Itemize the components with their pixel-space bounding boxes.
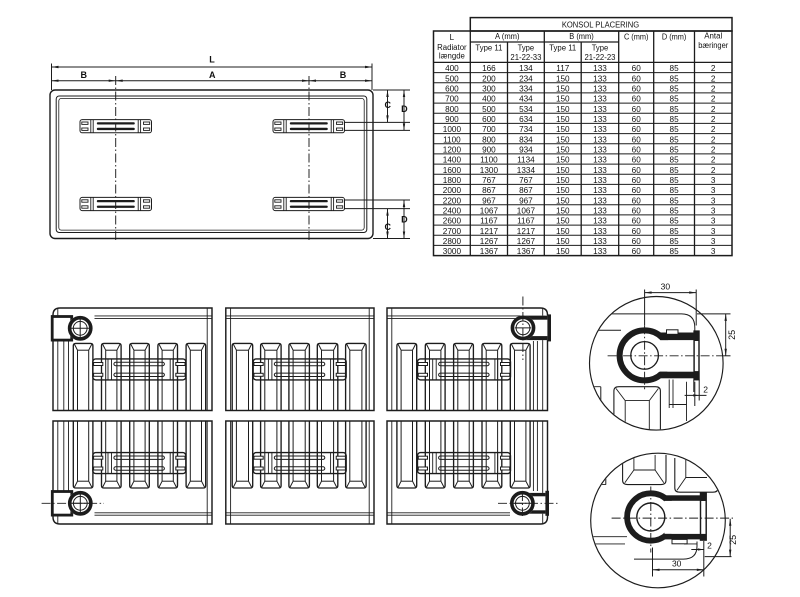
svg-text:150: 150 [556,84,570,93]
svg-text:1800: 1800 [443,176,462,185]
svg-text:Type 11: Type 11 [549,44,577,53]
svg-text:133: 133 [593,227,607,236]
svg-text:85: 85 [670,176,680,185]
svg-text:85: 85 [670,135,680,144]
svg-text:2600: 2600 [443,217,462,226]
svg-text:D: D [401,104,408,114]
svg-text:600: 600 [482,115,496,124]
svg-text:A (mm): A (mm) [495,32,520,41]
svg-text:1400: 1400 [443,156,462,165]
svg-text:60: 60 [632,125,642,134]
svg-text:1134: 1134 [517,156,535,165]
svg-text:2: 2 [711,64,716,73]
svg-text:150: 150 [556,156,570,165]
svg-text:60: 60 [632,227,642,236]
svg-text:500: 500 [445,74,459,83]
svg-text:1200: 1200 [443,145,462,154]
svg-text:85: 85 [670,74,680,83]
svg-text:2: 2 [711,156,716,165]
svg-text:133: 133 [593,186,607,195]
svg-text:700: 700 [445,95,459,104]
svg-text:85: 85 [670,166,680,175]
svg-text:400: 400 [445,64,459,73]
svg-text:2: 2 [711,135,716,144]
svg-text:150: 150 [556,196,570,205]
svg-text:133: 133 [593,84,607,93]
svg-text:3: 3 [711,227,716,236]
svg-text:2700: 2700 [443,227,462,236]
svg-text:2: 2 [711,166,716,175]
svg-text:1334: 1334 [517,166,536,175]
svg-text:KONSOL PLACERING: KONSOL PLACERING [562,20,639,29]
svg-text:150: 150 [556,95,570,104]
svg-text:133: 133 [593,95,607,104]
svg-text:133: 133 [593,105,607,114]
svg-text:150: 150 [556,145,570,154]
svg-text:Antal: Antal [704,31,722,40]
svg-text:634: 634 [519,115,533,124]
svg-text:800: 800 [445,105,459,114]
svg-text:134: 134 [519,64,533,73]
svg-text:C (mm): C (mm) [624,33,649,42]
svg-text:2: 2 [711,145,716,154]
svg-text:1600: 1600 [443,166,462,175]
svg-text:2: 2 [703,384,708,394]
svg-text:25: 25 [728,535,738,545]
svg-text:60: 60 [632,156,642,165]
svg-text:867: 867 [519,186,533,195]
svg-text:133: 133 [593,217,607,226]
svg-text:400: 400 [482,95,496,104]
svg-text:1067: 1067 [517,207,536,216]
svg-text:967: 967 [482,196,496,205]
svg-text:150: 150 [556,166,570,175]
svg-text:834: 834 [519,135,533,144]
svg-text:30: 30 [672,559,682,569]
svg-text:1267: 1267 [480,237,499,246]
svg-text:900: 900 [445,115,459,124]
svg-text:60: 60 [632,95,642,104]
svg-text:150: 150 [556,74,570,83]
svg-text:L: L [450,33,455,42]
svg-text:2800: 2800 [443,237,462,246]
svg-text:1217: 1217 [480,227,499,236]
svg-text:934: 934 [519,145,533,154]
svg-text:133: 133 [593,74,607,83]
svg-text:150: 150 [556,186,570,195]
svg-text:500: 500 [482,105,496,114]
svg-text:150: 150 [556,176,570,185]
svg-text:2: 2 [711,125,716,134]
svg-text:85: 85 [670,115,680,124]
svg-text:Type: Type [518,44,535,53]
svg-text:3: 3 [711,237,716,246]
svg-text:C: C [384,100,391,110]
svg-text:133: 133 [593,207,607,216]
svg-text:2200: 2200 [443,196,462,205]
svg-text:85: 85 [670,247,680,256]
svg-text:133: 133 [593,125,607,134]
svg-text:2: 2 [711,84,716,93]
svg-text:2: 2 [711,105,716,114]
svg-text:150: 150 [556,217,570,226]
svg-text:1000: 1000 [443,125,462,134]
svg-text:60: 60 [632,237,642,246]
svg-text:60: 60 [632,135,642,144]
svg-text:B: B [81,70,88,80]
svg-text:150: 150 [556,237,570,246]
svg-text:60: 60 [632,186,642,195]
svg-text:Type 11: Type 11 [475,44,503,53]
svg-text:133: 133 [593,156,607,165]
svg-text:2400: 2400 [443,207,462,216]
svg-text:150: 150 [556,115,570,124]
svg-text:767: 767 [482,176,496,185]
svg-text:85: 85 [670,217,680,226]
svg-text:85: 85 [670,95,680,104]
svg-text:2000: 2000 [443,186,462,195]
svg-text:900: 900 [482,145,496,154]
svg-text:133: 133 [593,64,607,73]
svg-text:3: 3 [711,217,716,226]
svg-text:133: 133 [593,166,607,175]
svg-text:133: 133 [593,115,607,124]
svg-text:85: 85 [670,237,680,246]
svg-text:867: 867 [482,186,496,195]
svg-text:1167: 1167 [480,217,498,226]
svg-text:800: 800 [482,135,496,144]
svg-text:1367: 1367 [480,247,499,256]
svg-text:133: 133 [593,237,607,246]
svg-text:60: 60 [632,74,642,83]
svg-text:967: 967 [519,196,533,205]
svg-text:L: L [209,55,215,65]
svg-text:3: 3 [711,207,716,216]
svg-text:166: 166 [482,64,496,73]
svg-text:133: 133 [593,247,607,256]
svg-text:bæringer: bæringer [698,41,728,50]
svg-text:334: 334 [519,84,533,93]
svg-text:30: 30 [661,282,671,292]
svg-text:85: 85 [670,105,680,114]
svg-text:117: 117 [556,64,569,73]
svg-text:3000: 3000 [443,247,462,256]
svg-text:21-22-33: 21-22-33 [510,53,542,62]
svg-text:85: 85 [670,227,680,236]
svg-text:D: D [401,214,408,224]
svg-text:434: 434 [519,95,533,104]
svg-text:1300: 1300 [480,166,499,175]
svg-text:85: 85 [670,145,680,154]
svg-text:60: 60 [632,217,642,226]
svg-text:1167: 1167 [517,217,535,226]
svg-text:60: 60 [632,64,642,73]
svg-text:150: 150 [556,125,570,134]
svg-text:Type: Type [592,44,609,53]
svg-text:B: B [340,70,347,80]
svg-text:767: 767 [519,176,533,185]
svg-text:D (mm): D (mm) [662,33,687,42]
svg-text:85: 85 [670,125,680,134]
svg-text:534: 534 [519,105,533,114]
svg-text:A: A [209,70,216,80]
svg-text:60: 60 [632,196,642,205]
svg-text:25: 25 [727,330,737,340]
svg-text:2: 2 [711,95,716,104]
svg-text:1100: 1100 [443,135,461,144]
svg-text:3: 3 [711,196,716,205]
svg-text:60: 60 [632,166,642,175]
svg-text:60: 60 [632,84,642,93]
svg-text:600: 600 [445,84,459,93]
svg-text:60: 60 [632,115,642,124]
svg-text:2: 2 [707,541,712,551]
svg-text:734: 734 [519,125,533,134]
svg-text:C: C [384,222,391,232]
svg-text:150: 150 [556,135,570,144]
svg-text:1267: 1267 [517,237,536,246]
svg-text:85: 85 [670,186,680,195]
svg-text:1217: 1217 [517,227,536,236]
svg-text:1367: 1367 [517,247,536,256]
svg-text:85: 85 [670,156,680,165]
svg-text:1100: 1100 [480,156,498,165]
svg-text:21-22-23: 21-22-23 [584,53,616,62]
svg-text:60: 60 [632,247,642,256]
svg-text:85: 85 [670,84,680,93]
svg-text:1067: 1067 [480,207,499,216]
svg-text:234: 234 [519,74,533,83]
svg-text:150: 150 [556,247,570,256]
svg-text:3: 3 [711,247,716,256]
svg-text:700: 700 [482,125,496,134]
svg-text:60: 60 [632,145,642,154]
svg-text:133: 133 [593,176,607,185]
svg-text:2: 2 [711,74,716,83]
svg-text:3: 3 [711,186,716,195]
svg-text:150: 150 [556,105,570,114]
svg-text:længde: længde [439,51,466,60]
svg-text:300: 300 [482,84,496,93]
svg-text:150: 150 [556,227,570,236]
svg-text:85: 85 [670,64,680,73]
svg-text:150: 150 [556,207,570,216]
svg-text:133: 133 [593,196,607,205]
svg-text:60: 60 [632,105,642,114]
svg-text:2: 2 [711,115,716,124]
svg-text:3: 3 [711,176,716,185]
svg-text:85: 85 [670,196,680,205]
svg-text:60: 60 [632,207,642,216]
svg-text:200: 200 [482,74,496,83]
svg-text:60: 60 [632,176,642,185]
svg-text:B (mm): B (mm) [569,32,594,41]
svg-text:133: 133 [593,135,607,144]
svg-text:85: 85 [670,207,680,216]
svg-text:133: 133 [593,145,607,154]
